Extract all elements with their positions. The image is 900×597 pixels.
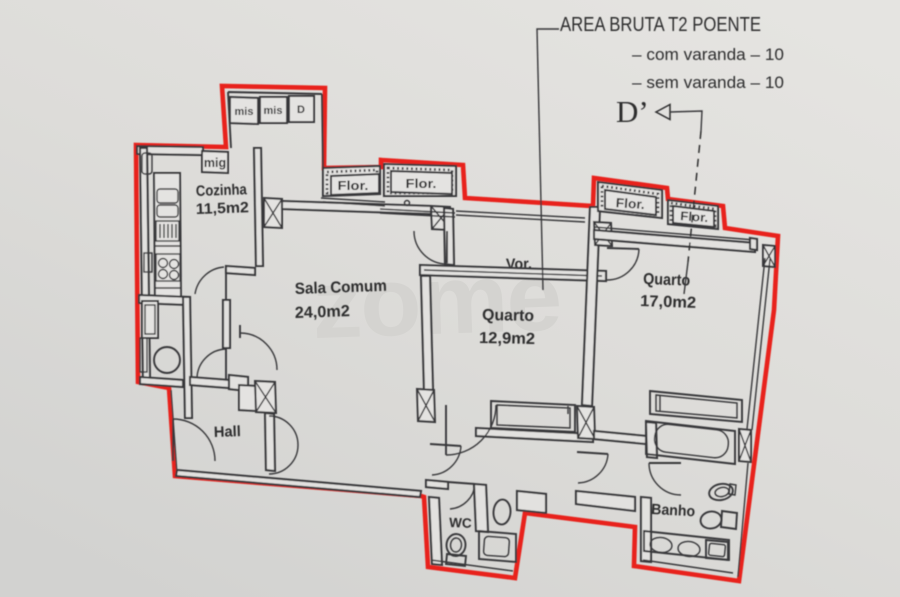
svg-text:Flor.: Flor. bbox=[615, 195, 645, 212]
svg-text:mis: mis bbox=[264, 105, 283, 117]
svg-text:WC: WC bbox=[449, 515, 472, 531]
svg-text:24,0m2: 24,0m2 bbox=[295, 303, 351, 322]
svg-text:D’: D’ bbox=[616, 94, 649, 129]
svg-text:mis: mis bbox=[235, 106, 254, 118]
svg-text:Flor.: Flor. bbox=[680, 209, 709, 225]
svg-text:Flor.: Flor. bbox=[338, 178, 369, 193]
svg-text:Cozinha: Cozinha bbox=[196, 181, 248, 200]
svg-text:Banho: Banho bbox=[651, 501, 696, 520]
svg-text:11,5m2: 11,5m2 bbox=[196, 199, 250, 218]
svg-text:D: D bbox=[297, 104, 305, 116]
svg-text:mig: mig bbox=[204, 156, 226, 170]
svg-text:Sala Comum: Sala Comum bbox=[295, 278, 388, 298]
svg-text:– sem varanda – 10: – sem varanda – 10 bbox=[632, 74, 784, 92]
svg-text:Hall: Hall bbox=[214, 423, 242, 441]
svg-text:12,9m2: 12,9m2 bbox=[479, 330, 535, 348]
svg-text:17,0m2: 17,0m2 bbox=[640, 293, 697, 312]
svg-text:Quarto: Quarto bbox=[482, 307, 535, 325]
svg-text:Quarto: Quarto bbox=[643, 271, 691, 290]
svg-text:– com varanda – 10: – com varanda – 10 bbox=[632, 46, 784, 64]
svg-text:AREA BRUTA T2 POENTE: AREA BRUTA T2 POENTE bbox=[560, 14, 761, 36]
svg-text:Flor.: Flor. bbox=[406, 176, 437, 191]
